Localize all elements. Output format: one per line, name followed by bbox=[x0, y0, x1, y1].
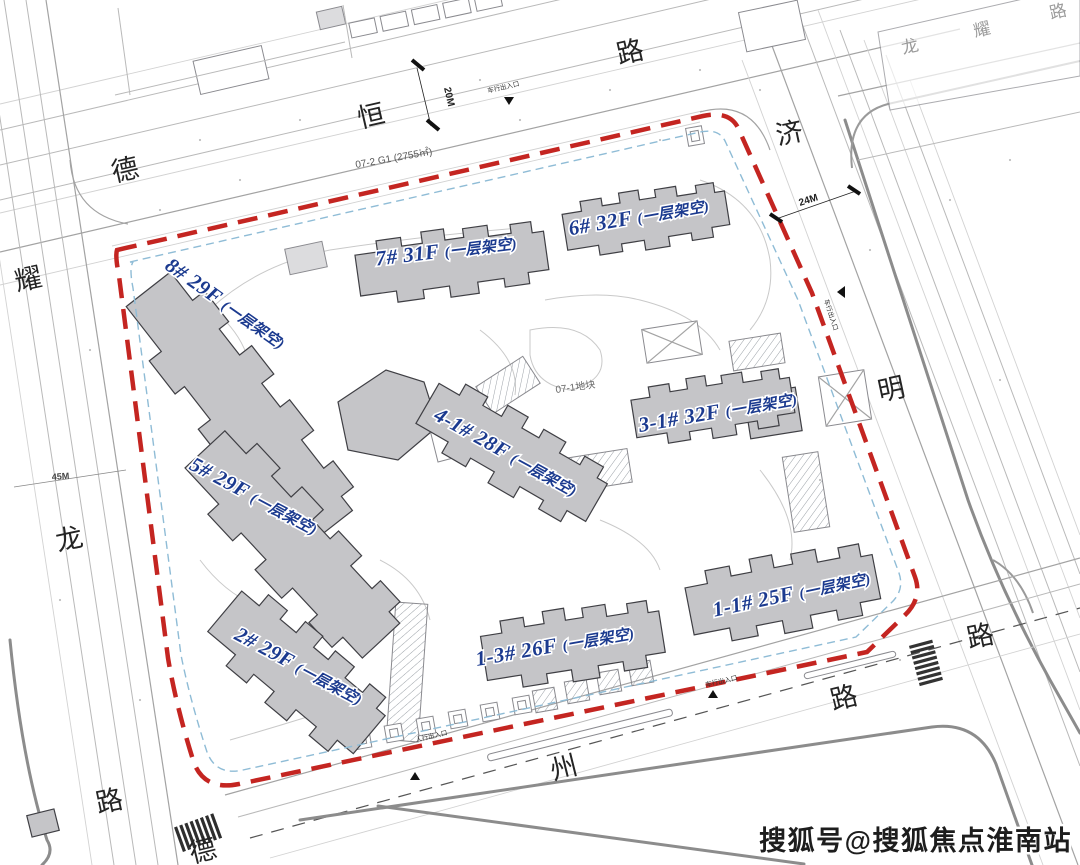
site-plan-drawing: 20M 24M 45M 07-2 G1 (2755㎡) 07-1地块 车行出入口… bbox=[0, 0, 1080, 865]
sohu-watermark: 搜狐号@搜狐焦点淮南站 bbox=[759, 825, 1072, 856]
paper-background bbox=[0, 0, 1080, 865]
site-plan-page: 20M 24M 45M 07-2 G1 (2755㎡) 07-1地块 车行出入口… bbox=[0, 0, 1080, 865]
dim-45m-label: 45M bbox=[51, 471, 69, 482]
